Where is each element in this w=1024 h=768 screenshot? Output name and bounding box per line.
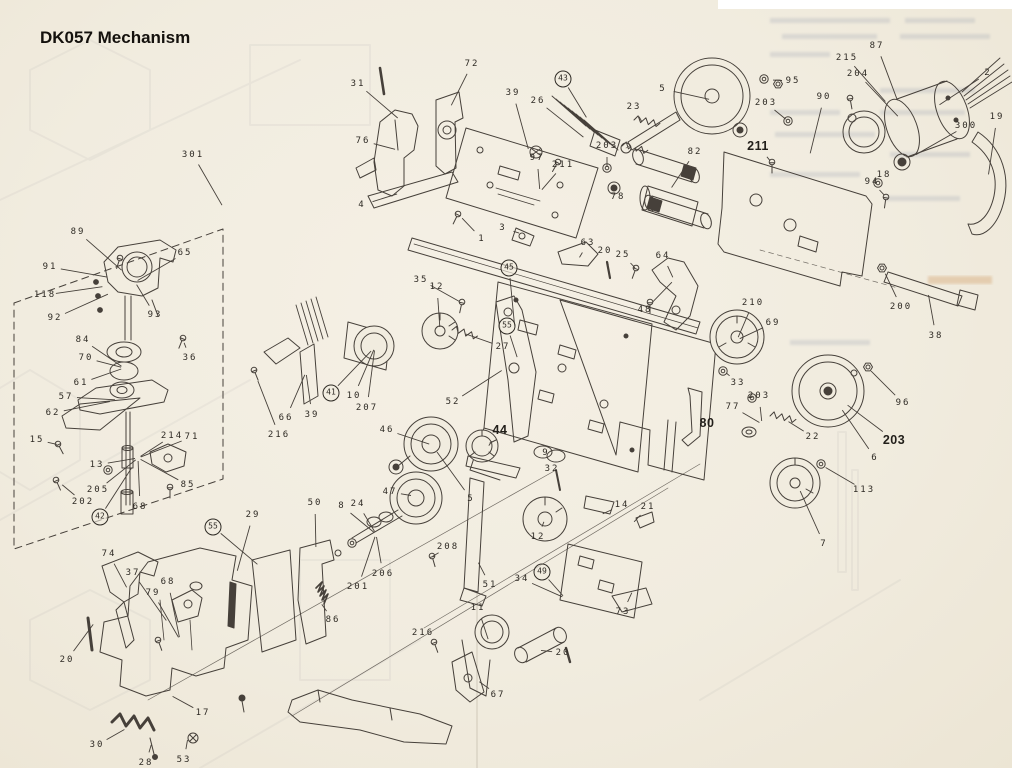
leader-line-93 xyxy=(137,285,150,306)
leader-line-63 xyxy=(580,253,583,258)
leader-line-46 xyxy=(397,434,429,445)
leader-line-30 xyxy=(107,730,125,740)
leader-line-61 xyxy=(91,369,121,379)
leader-line-17 xyxy=(173,696,194,707)
leader-line-55 xyxy=(221,533,258,564)
leader-line-203 xyxy=(848,405,883,431)
leader-line-33 xyxy=(726,373,729,376)
leader-line-92 xyxy=(65,294,108,313)
leader-line-94 xyxy=(880,190,885,195)
leader-line-47 xyxy=(401,494,411,496)
leader-line-82 xyxy=(672,161,689,187)
leader-line-55 xyxy=(510,336,517,358)
leader-line-68 xyxy=(138,461,140,496)
leader-line-48 xyxy=(653,282,672,302)
leader-line-57 xyxy=(77,398,115,400)
leader-line-5 xyxy=(674,91,709,99)
leader-line-87 xyxy=(881,56,898,100)
leader-line-20 xyxy=(608,262,609,265)
leader-line-15 xyxy=(48,442,57,444)
leader-line-86 xyxy=(322,604,327,611)
leader-line-62 xyxy=(64,402,110,411)
leader-line-65 xyxy=(138,259,176,281)
leader-line-12 xyxy=(438,298,440,327)
leader-line-1 xyxy=(462,218,474,231)
leader-line-14 xyxy=(603,510,612,514)
leader-line-67 xyxy=(479,682,489,689)
leader-line-22 xyxy=(789,422,804,432)
leader-line-28 xyxy=(149,745,151,753)
page-title: DK057 Mechanism xyxy=(40,28,190,48)
leader-line-50 xyxy=(315,514,316,547)
leader-line-201 xyxy=(362,537,376,577)
leader-line-29 xyxy=(237,526,250,571)
leader-line-36 xyxy=(184,343,186,348)
scan-edge-right xyxy=(1012,0,1024,768)
leader-line-20 xyxy=(74,624,94,651)
leader-line-77 xyxy=(743,413,760,423)
leader-line-73 xyxy=(628,593,632,602)
leader-line-44 xyxy=(489,441,492,445)
leader-line-2 xyxy=(940,79,979,105)
scan-edge-top xyxy=(718,0,1024,9)
leader-line-5 xyxy=(437,452,465,490)
leader-line-23 xyxy=(639,117,642,122)
leader-line-10 xyxy=(358,350,374,386)
leader-line-96 xyxy=(871,371,895,395)
leader-line-4 xyxy=(373,194,398,202)
leader-line-37 xyxy=(139,582,166,621)
leader-line-12 xyxy=(542,522,544,527)
leader-line-203 xyxy=(760,407,762,421)
leader-line-118 xyxy=(56,287,103,294)
scanned-manual-page: 3018965911189293368470615762151320520221… xyxy=(0,0,1024,768)
leader-line-52 xyxy=(462,371,502,397)
leader-line-300 xyxy=(916,132,957,155)
leader-line-27 xyxy=(466,334,493,343)
leader-line-97 xyxy=(538,169,540,189)
leader-line-72 xyxy=(451,74,467,106)
leader-line-69 xyxy=(740,328,763,339)
leader-line-39 xyxy=(306,375,310,404)
leader-line-76 xyxy=(374,144,395,150)
leader-line-31 xyxy=(366,91,397,118)
leader-line-7 xyxy=(800,491,819,534)
leader-line-8 xyxy=(351,513,374,532)
leader-line-11 xyxy=(481,619,488,640)
leader-line-206 xyxy=(377,537,382,563)
leader-line-21 xyxy=(634,515,640,522)
leader-line-215 xyxy=(854,66,885,101)
leader-line-19 xyxy=(989,128,996,174)
leader-line-211 xyxy=(542,173,556,189)
leader-line-204 xyxy=(866,82,898,116)
leader-line-45 xyxy=(510,278,515,326)
leader-line-301 xyxy=(199,165,223,206)
leader-line-210 xyxy=(738,313,748,337)
leader-line-49 xyxy=(549,580,563,596)
leader-line-202 xyxy=(62,485,74,495)
leader-line-74 xyxy=(114,564,127,588)
leader-line-66 xyxy=(290,375,304,408)
leader-line-211 xyxy=(767,157,770,161)
leader-line-13 xyxy=(108,459,135,464)
leader-line-203 xyxy=(775,110,786,119)
leader-line-38 xyxy=(929,295,935,325)
leader-line-64 xyxy=(668,266,673,277)
leader-line-43 xyxy=(568,88,586,118)
leader-line-6 xyxy=(842,410,869,449)
leader-line-200 xyxy=(885,274,896,297)
leader-line-207 xyxy=(368,351,374,398)
leader-line-25 xyxy=(631,263,636,268)
leader-line-35 xyxy=(431,285,460,301)
leader-line-216 xyxy=(258,381,275,425)
leader-line-90 xyxy=(810,108,821,154)
leader-line-51 xyxy=(478,563,485,576)
leader-line-205 xyxy=(107,460,136,483)
leader-line-113 xyxy=(826,468,855,485)
leader-line-89 xyxy=(86,239,121,270)
leader-line-85 xyxy=(141,459,179,479)
leader-line-39 xyxy=(516,104,528,149)
leader-line-3 xyxy=(514,231,520,233)
leader-line-20 xyxy=(541,650,552,651)
leader-line-91 xyxy=(61,269,107,277)
leader-line-53 xyxy=(186,740,188,749)
leader-line-26 xyxy=(547,108,584,137)
leader-line-208 xyxy=(433,553,439,557)
leader-lines xyxy=(0,0,1024,768)
